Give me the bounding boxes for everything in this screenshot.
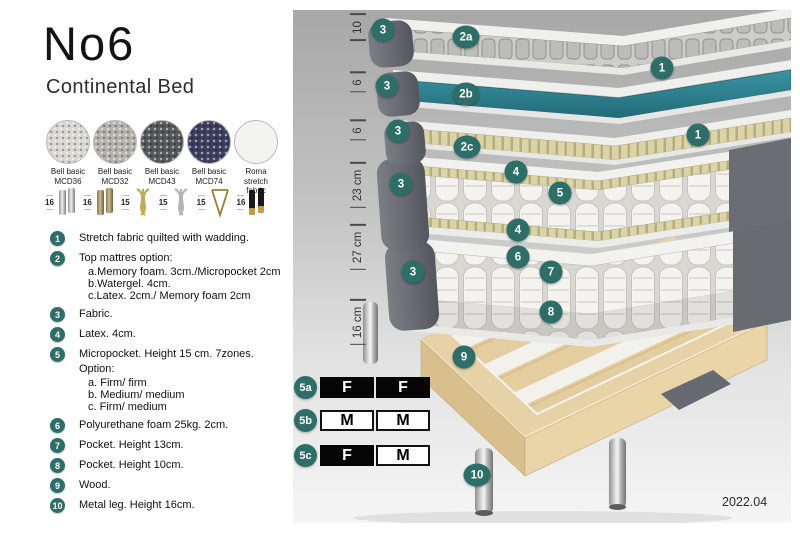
fabric-option: Romastretch fabric (234, 120, 278, 196)
firmness-cell: F (320, 445, 374, 466)
leg-height: 16 (83, 198, 92, 207)
feature-text: Top mattres option: (79, 251, 281, 266)
feature-item: 10 Metal leg. Height 16cm. (50, 498, 292, 513)
callout-3: 3 (387, 120, 410, 143)
feature-text: Metal leg. Height 16cm. (79, 498, 195, 513)
callout-7: 7 (540, 261, 563, 284)
diagram-panel: 10 6 6 23 cm 27 cm 16 cm 3 2a 1 3 2b 1 3… (293, 10, 791, 523)
callout-4: 4 (505, 161, 528, 184)
version-label: 2022.04 (722, 495, 767, 509)
callout-2c: 2c (454, 136, 481, 159)
firmness-badge-5a: 5a (294, 376, 317, 399)
feature-number-badge: 2 (50, 251, 65, 266)
feature-text: Polyurethane foam 25kg. 2cm. (79, 418, 228, 433)
feature-number-badge: 8 (50, 458, 65, 473)
fabric-name: Bell basic (192, 167, 226, 176)
leg-height: 15 (197, 198, 206, 207)
fabric-option: Bell basicMCD43 (140, 120, 184, 196)
feature-subitem: c. Firm/ medium (88, 401, 292, 413)
feature-subitem: b.Watergel. 4cm. (88, 278, 281, 290)
leg-icon-gold-twist (132, 186, 154, 218)
fabric-swatch-icon (140, 120, 184, 164)
callout-9: 9 (453, 346, 476, 369)
callout-3: 3 (390, 173, 413, 196)
feature-item: 2 Top mattres option: a.Memory foam. 3cm… (50, 251, 292, 302)
leg-height: 15 (159, 198, 168, 207)
firmness-row-5a: 5a F F (294, 376, 430, 399)
firmness-row-5b: 5b M M (294, 409, 430, 432)
firmness-cell: F (376, 377, 430, 398)
leg-option: 15 (159, 186, 192, 218)
feature-subitem: b. Medium/ medium (88, 389, 292, 401)
firmness-cell: M (376, 410, 430, 431)
feature-item: 7 Pocket. Height 13cm. (50, 438, 292, 453)
leg-option: 16 (237, 186, 268, 218)
fabric-swatch-icon (46, 120, 90, 164)
measurement-topper-2a: 10 (350, 13, 366, 41)
product-title: No6 (43, 16, 135, 71)
fabric-options: Bell basicMCD36 Bell basicMCD32 Bell bas… (46, 120, 278, 196)
feature-number-badge: 1 (50, 231, 65, 246)
feature-item: 4 Latex. 4cm. (50, 327, 292, 342)
feature-number-badge: 10 (50, 498, 65, 513)
leg-height: 16 (237, 198, 246, 207)
fabric-code: MCD32 (101, 177, 128, 186)
callout-1: 1 (651, 57, 674, 80)
callout-10: 10 (464, 464, 491, 487)
fabric-name: Bell basic (98, 167, 132, 176)
fabric-option: Bell basicMCD74 (187, 120, 231, 196)
feature-text: Pocket. Height 10cm. (79, 458, 184, 473)
fabric-swatch-icon (187, 120, 231, 164)
callout-3: 3 (372, 19, 395, 42)
feature-list: 1 Stretch fabric quilted with wadding. 2… (50, 231, 292, 518)
callout-5: 5 (549, 182, 572, 205)
feature-item: 9 Wood. (50, 478, 292, 493)
callout-1: 1 (687, 124, 710, 147)
feature-subitem: c.Latex. 2cm./ Memory foam 2cm (88, 290, 281, 302)
feature-number-badge: 6 (50, 418, 65, 433)
feature-item: 8 Pocket. Height 10cm. (50, 458, 292, 473)
fabric-name: Bell basic (145, 167, 179, 176)
callout-3: 3 (402, 261, 425, 284)
product-sheet: No6 Continental Bed Bell basicMCD36 Bell… (0, 0, 800, 533)
layer-topper-2a (367, 10, 791, 75)
feature-text: Micropocket. Height 15 cm. 7zones. Optio… (79, 347, 292, 377)
fabric-code: MCD74 (195, 177, 222, 186)
leg-height: 15 (121, 198, 130, 207)
leg-options: 16 16 15 15 15 (45, 186, 267, 218)
firmness-badge-5c: 5c (294, 444, 317, 467)
measurement-wood-base: 16 cm (350, 299, 366, 345)
feature-number-badge: 3 (50, 307, 65, 322)
feature-item: 3 Fabric. (50, 307, 292, 322)
leg-option: 16 (45, 186, 78, 218)
leg-icon-chrome-cylinder (56, 186, 78, 218)
callout-4: 4 (507, 219, 530, 242)
firmness-badge-5b: 5b (294, 409, 317, 432)
leg-icon-black-gold-cylinder (247, 186, 267, 218)
leg-icon-gold-hairpin (208, 186, 232, 218)
measurement-lower-mattress: 27 cm (350, 224, 366, 270)
firmness-row-5c: 5c F M (294, 444, 430, 467)
measurement-topper-2b: 6 (350, 71, 366, 92)
feature-text: Stretch fabric quilted with wadding. (79, 231, 249, 246)
firmness-cell: F (320, 377, 374, 398)
feature-number-badge: 9 (50, 478, 65, 493)
feature-text: Fabric. (79, 307, 113, 322)
firmness-cell: M (320, 410, 374, 431)
feature-text: Latex. 4cm. (79, 327, 136, 342)
fabric-name: Roma (245, 167, 266, 176)
measurement-main-mattress: 23 cm (350, 162, 366, 208)
callout-3: 3 (376, 75, 399, 98)
feature-item: 1 Stretch fabric quilted with wadding. (50, 231, 292, 246)
leg-option: 16 (83, 186, 116, 218)
feature-number-badge: 7 (50, 438, 65, 453)
fabric-swatch-icon (234, 120, 278, 164)
feature-number-badge: 4 (50, 327, 65, 342)
product-subtitle: Continental Bed (46, 76, 194, 99)
callout-6: 6 (507, 246, 530, 269)
feature-text: Wood. (79, 478, 111, 493)
fabric-option: Bell basicMCD32 (93, 120, 137, 196)
fabric-swatch-icon (93, 120, 137, 164)
leg-option: 15 (197, 186, 232, 218)
feature-subitem: a.Memory foam. 3cm./Micropocket 2cm (88, 266, 281, 278)
feature-number-badge: 5 (50, 347, 65, 362)
callout-8: 8 (540, 301, 563, 324)
leg-icon-silver-twist (170, 186, 192, 218)
fabric-name: Bell basic (51, 167, 85, 176)
measurement-topper-2c: 6 (350, 119, 366, 140)
feature-subitem: a. Firm/ firm (88, 377, 292, 389)
feature-item: 6 Polyurethane foam 25kg. 2cm. (50, 418, 292, 433)
fabric-code: MCD43 (148, 177, 175, 186)
feature-text: Pocket. Height 13cm. (79, 438, 184, 453)
callout-2a: 2a (453, 26, 480, 49)
floor-shadow (353, 511, 733, 523)
feature-item: 5 Micropocket. Height 15 cm. 7zones. Opt… (50, 347, 292, 413)
leg-icon-bronze-cylinder (94, 186, 116, 218)
fabric-option: Bell basicMCD36 (46, 120, 90, 196)
leg-option: 15 (121, 186, 154, 218)
leg-height: 16 (45, 198, 54, 207)
fabric-code: MCD36 (54, 177, 81, 186)
callout-2b: 2b (453, 83, 480, 106)
firmness-cell: M (376, 445, 430, 466)
